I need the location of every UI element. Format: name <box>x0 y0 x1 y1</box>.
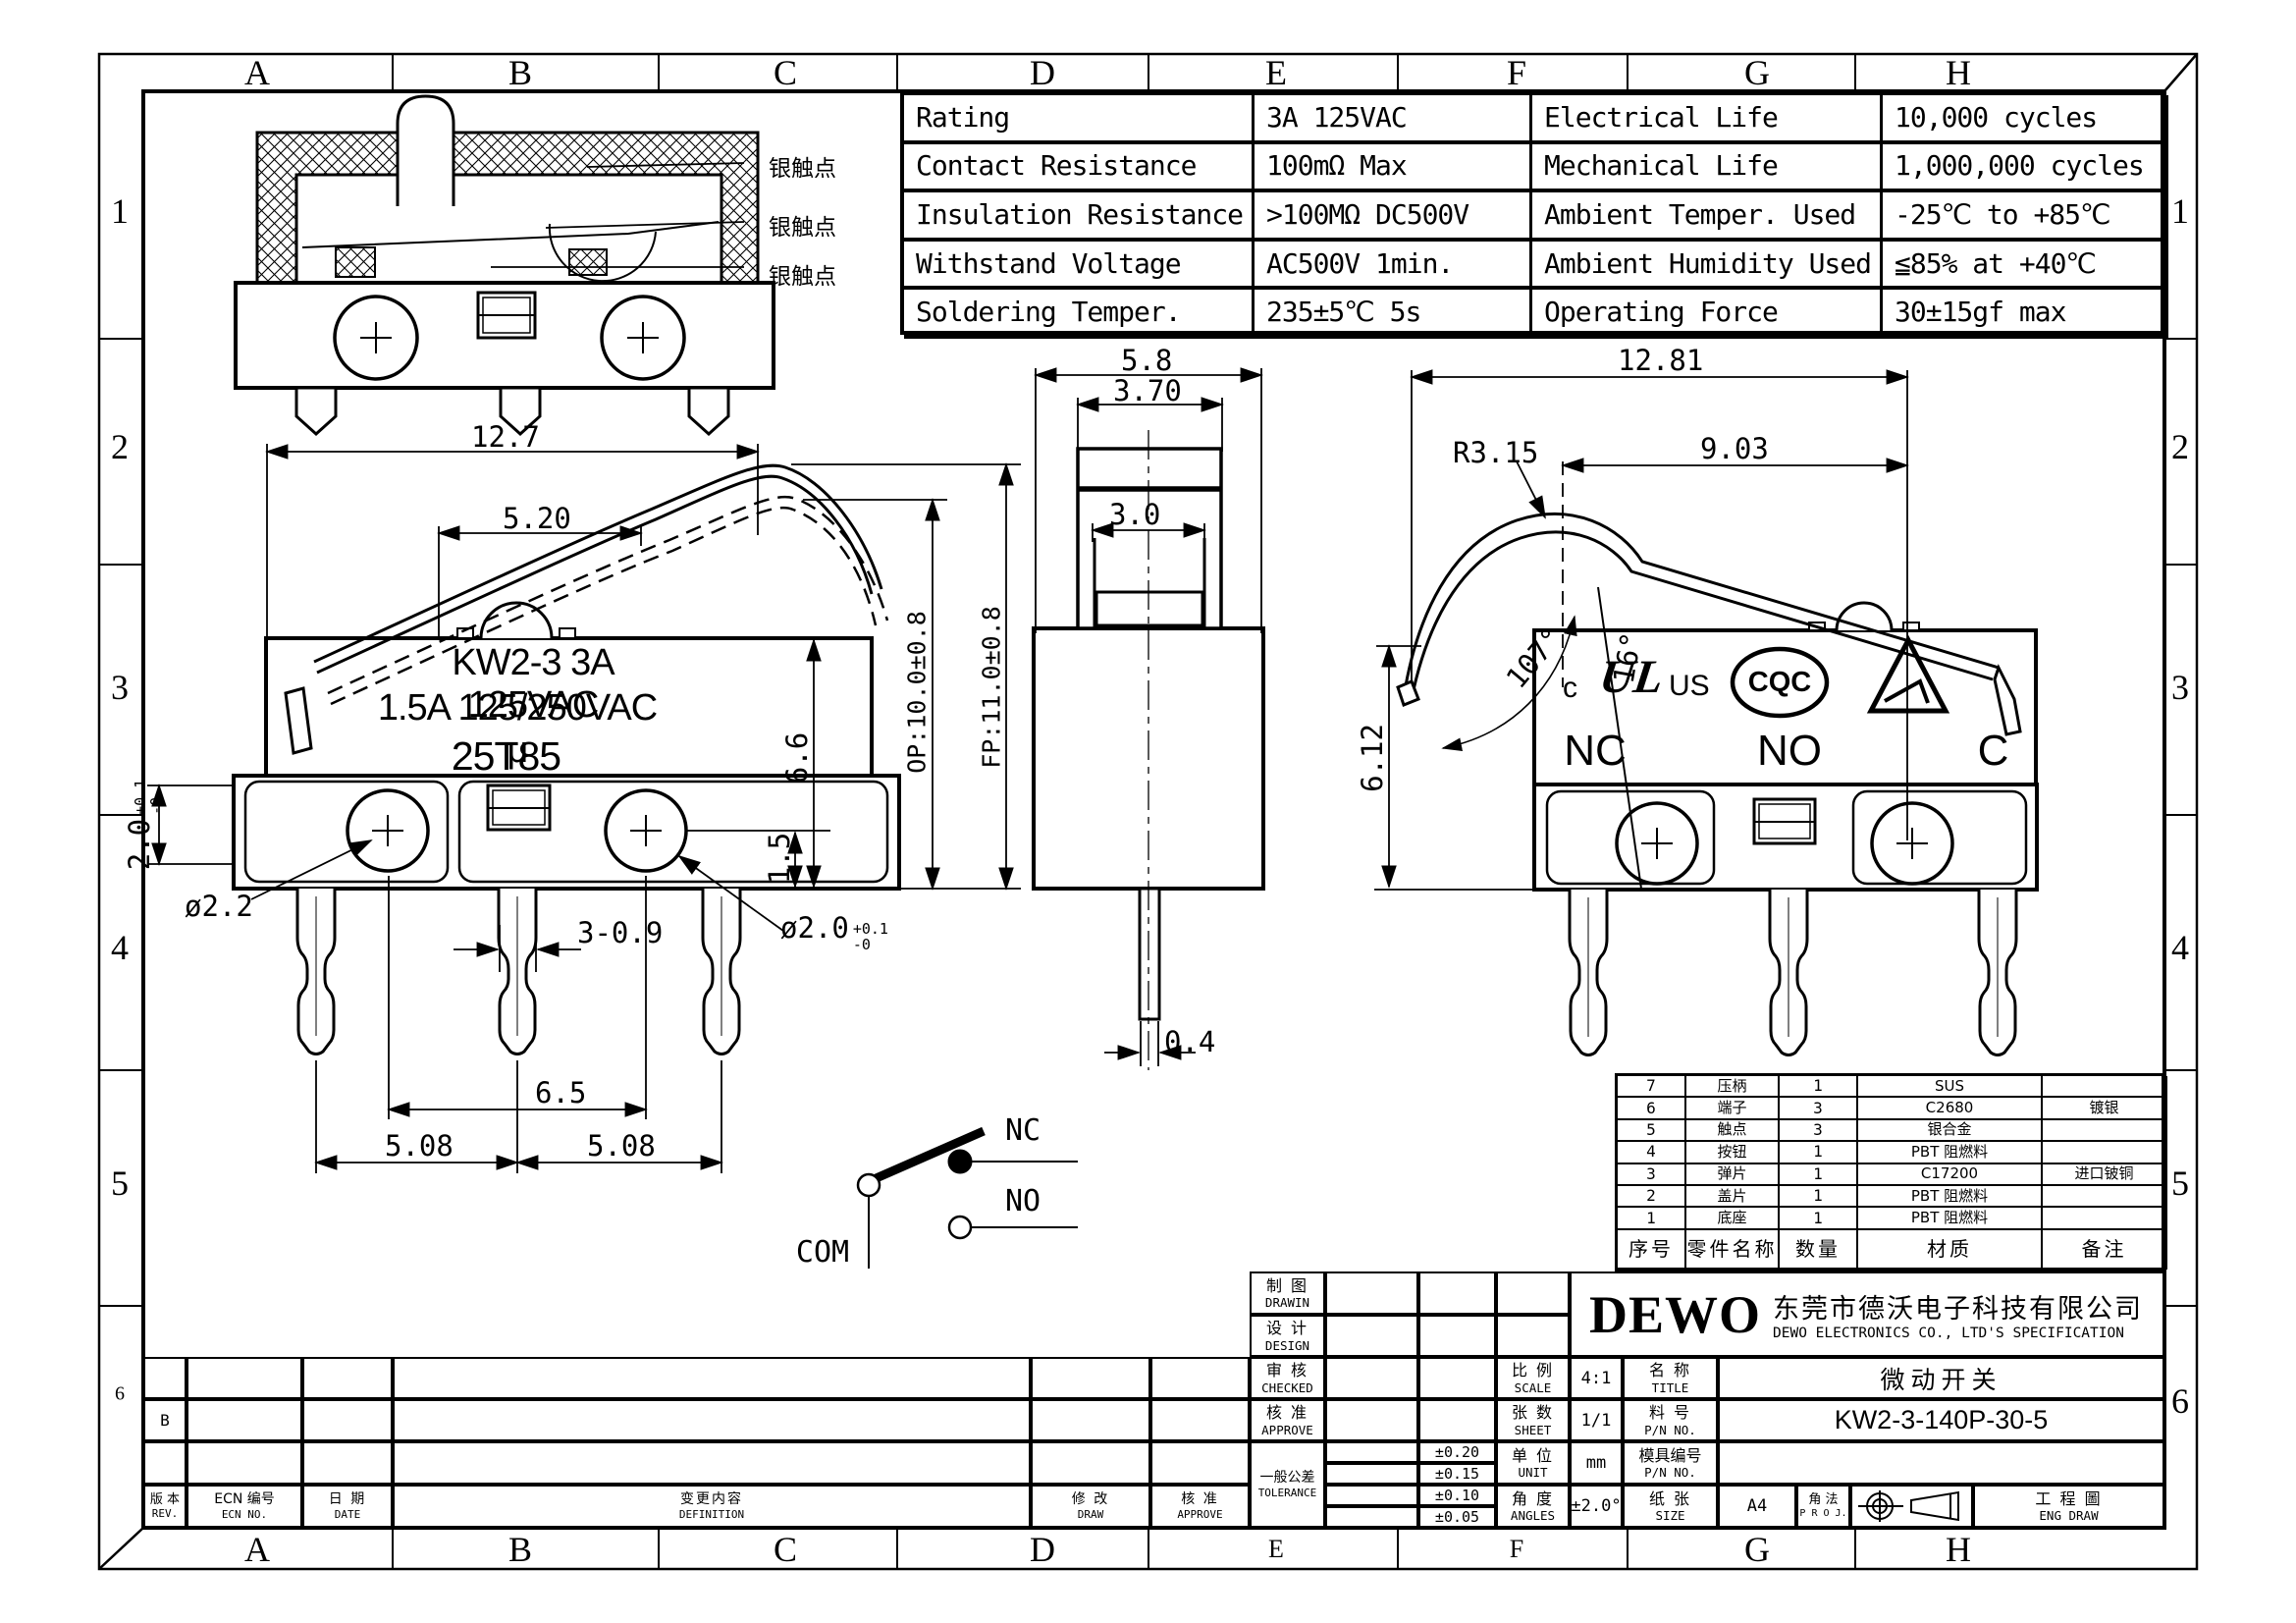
grid-top-a: A <box>244 52 270 93</box>
dim-value: 2.0 <box>123 819 156 870</box>
rev-header-date: 日 期 DATE <box>302 1485 393 1528</box>
dim-step-height: 1.5 <box>763 833 796 884</box>
spec-value: -25℃ to +85℃ <box>1883 192 2168 242</box>
dim-pin-width: 3-0.9 <box>577 916 663 949</box>
titleblock-empty-cell <box>1496 1315 1570 1357</box>
titleblock-empty-cell <box>1418 1399 1496 1441</box>
dim-lever-tip-height: 6.12 <box>1356 724 1389 792</box>
pn-label: 料 号 P/N NO. <box>1623 1399 1718 1441</box>
spec-value: 10,000 cycles <box>1883 95 2168 144</box>
part-remark <box>2043 1076 2167 1098</box>
scale-label: 比 例 SCALE <box>1496 1357 1570 1399</box>
tol-lower: -0 <box>149 780 165 815</box>
left-side-view-drawing <box>147 444 1021 1173</box>
grid-top-g: G <box>1744 52 1770 93</box>
part-no: 7 <box>1618 1076 1686 1098</box>
part-remark <box>2043 1186 2167 1208</box>
label-cn: 核 准 <box>1266 1403 1308 1422</box>
label-cn: 料 号 <box>1649 1403 1691 1422</box>
grid-top-b: B <box>508 52 532 93</box>
part-name: 端子 <box>1686 1098 1780 1119</box>
rev-empty-cell <box>1031 1357 1150 1399</box>
silver-contact-label: 银触点 <box>769 257 836 291</box>
rev-empty-cell <box>143 1357 187 1399</box>
parts-header-material: 材质 <box>1858 1230 2043 1270</box>
tolerance-stack: +0.1-0 <box>133 780 165 815</box>
dim-hole-span: 6.5 <box>535 1076 586 1109</box>
spec-param: Ambient Temper. Used <box>1532 192 1883 242</box>
label-en: ENG DRAW <box>2039 1508 2098 1523</box>
label-en: SCALE <box>1515 1380 1552 1395</box>
dim-right-overall-width: 12.81 <box>1618 344 1703 377</box>
dim-overall-width: 12.7 <box>471 420 540 454</box>
rev-empty-cell <box>1150 1399 1250 1441</box>
label-en: DATE <box>335 1508 361 1521</box>
parts-header-name: 零件名称 <box>1686 1230 1780 1270</box>
spec-value: 100mΩ Max <box>1255 144 1532 193</box>
label-cn: 工 程 圖 <box>2035 1489 2102 1508</box>
spec-param: Insulation Resistance <box>904 192 1255 242</box>
part-name: 触点 <box>1686 1120 1780 1142</box>
company-name-en: DEWO ELECTRONICS CO., LTD'S SPECIFICATIO… <box>1773 1325 2143 1341</box>
grid-bottom-c: C <box>774 1529 797 1570</box>
part-remark <box>2043 1142 2167 1163</box>
ul-logo-icon: UL <box>1596 650 1667 704</box>
label-en: DRAW <box>1078 1508 1104 1521</box>
label-en: UNIT <box>1518 1465 1547 1480</box>
titleblock-empty-cell <box>1325 1315 1418 1357</box>
grid-right-3: 3 <box>2171 667 2189 708</box>
product-title: 微动开关 <box>1718 1357 2164 1399</box>
spec-param: Withstand Voltage <box>904 242 1255 291</box>
rev-empty-cell <box>393 1399 1031 1441</box>
dim-front-width: 5.8 <box>1121 344 1172 377</box>
label-cn: 角 度 <box>1512 1489 1554 1508</box>
label-en: APPROVE <box>1261 1423 1313 1437</box>
grid-bottom-f: F <box>1510 1535 1523 1564</box>
grid-top-h: H <box>1946 52 1971 93</box>
grid-right-1: 1 <box>2171 190 2189 232</box>
label-en: ECN NO. <box>222 1508 267 1521</box>
parts-header-qty: 数量 <box>1780 1230 1858 1270</box>
grid-bottom-a: A <box>244 1529 270 1570</box>
label-en: DESIGN <box>1265 1338 1309 1353</box>
nc-contact-icon <box>948 1150 972 1173</box>
tolerance-empty-cell <box>1325 1463 1418 1485</box>
rev-empty-cell <box>393 1357 1031 1399</box>
titleblock-drawing-label: 制 图 DRAWIN <box>1250 1271 1325 1315</box>
titleblock-empty-cell <box>1418 1357 1496 1399</box>
grid-bottom-b: B <box>508 1529 532 1570</box>
spec-value: 30±15gf max <box>1883 290 2168 339</box>
circuit-label-no: NO <box>993 1184 1052 1218</box>
label-en: SIZE <box>1655 1508 1684 1523</box>
dim-lever-radius: R3.15 <box>1453 436 1538 469</box>
company-header: DEWO 东莞市德沃电子科技有限公司 DEWO ELECTRONICS CO.,… <box>1570 1271 2164 1357</box>
titleblock-empty-cell <box>1418 1271 1496 1315</box>
spec-param: Mechanical Life <box>1532 144 1883 193</box>
label-cn: ECN 编号 <box>214 1491 275 1508</box>
label-cn: 单 位 <box>1512 1446 1554 1465</box>
part-no: 1 <box>1618 1208 1686 1229</box>
ul-us-text: US <box>1669 670 1710 703</box>
label-en: APPROVE <box>1177 1508 1222 1521</box>
rev-empty-cell <box>187 1357 302 1399</box>
spec-value: 1,000,000 cycles <box>1883 144 2168 193</box>
spec-table: Rating 3A 125VAC Electrical Life 10,000 … <box>900 91 2164 335</box>
tol-lower: -0 <box>853 938 888 953</box>
part-qty: 3 <box>1780 1120 1858 1142</box>
spec-value: AC500V 1min. <box>1255 242 1532 291</box>
part-material: C2680 <box>1858 1098 2043 1119</box>
parts-header-remark: 备注 <box>2043 1230 2167 1270</box>
part-remark <box>2043 1208 2167 1229</box>
circuit-label-com: COM <box>783 1235 862 1270</box>
part-qty: 1 <box>1780 1142 1858 1163</box>
terminal-label-nc: NC <box>1561 727 1629 776</box>
grid-top-e: E <box>1265 52 1287 93</box>
sheet-label: 张 数 SHEET <box>1496 1399 1570 1441</box>
parts-header-no: 序号 <box>1618 1230 1686 1270</box>
grid-top-f: F <box>1507 52 1526 93</box>
rev-empty-cell <box>1150 1357 1250 1399</box>
part-no: 2 <box>1618 1186 1686 1208</box>
rev-empty-cell <box>1031 1399 1150 1441</box>
dim-hole-left: ø2.2 <box>185 890 253 923</box>
company-name-cn: 东莞市德沃电子科技有限公司 <box>1773 1287 2143 1325</box>
part-material: PBT 阻燃料 <box>1858 1208 2043 1229</box>
spec-value: 3A 125VAC <box>1255 95 1532 144</box>
grid-right-6: 6 <box>2171 1380 2189 1422</box>
rev-header-definition: 变更内容 DEFINITION <box>393 1485 1031 1528</box>
front-view-drawing <box>1034 368 1263 1070</box>
dim-button-inner-width: 3.0 <box>1109 498 1160 531</box>
label-en: P/N NO. <box>1644 1465 1696 1480</box>
label-cn: 修 改 <box>1072 1491 1109 1508</box>
spec-value: 235±5℃ 5s <box>1255 290 1532 339</box>
part-material: 银合金 <box>1858 1120 2043 1142</box>
rev-empty-cell <box>1031 1441 1150 1485</box>
label-cn: 模具编号 <box>1638 1446 1701 1465</box>
grid-right-4: 4 <box>2171 927 2189 968</box>
part-no: 5 <box>1618 1120 1686 1142</box>
label-en: DEFINITION <box>679 1508 744 1521</box>
paper-size-label: 纸 张 SIZE <box>1623 1485 1718 1528</box>
dim-pin-thickness: 0.4 <box>1164 1025 1215 1058</box>
dewo-logo: DEWO <box>1589 1284 1761 1345</box>
titleblock-empty-cell <box>1325 1271 1418 1315</box>
body-marking-line3: 25T85 <box>420 733 592 780</box>
title-label: 名 称 TITLE <box>1623 1357 1718 1399</box>
part-name: 弹片 <box>1686 1164 1780 1186</box>
dim-free-position: FP:11.0±0.8 <box>978 606 1006 769</box>
dim-operating-position: OP:10.0±0.8 <box>903 611 932 774</box>
part-number-value: KW2-3-140P-30-5 <box>1718 1399 2164 1441</box>
part-name: 盖片 <box>1686 1186 1780 1208</box>
grid-bottom-h: H <box>1946 1529 1971 1570</box>
tolerance-value: ±0.10 <box>1418 1485 1496 1506</box>
scale-value: 4:1 <box>1570 1357 1623 1399</box>
label-cn: 日 期 <box>329 1491 366 1508</box>
part-qty: 1 <box>1780 1164 1858 1186</box>
rev-empty-cell <box>302 1441 393 1485</box>
label-cn: 核 准 <box>1181 1491 1218 1508</box>
spec-value: ≦85% at +40℃ <box>1883 242 2168 291</box>
spec-param: Electrical Life <box>1532 95 1883 144</box>
rev-empty-cell <box>143 1441 187 1485</box>
titleblock-empty-cell <box>1496 1271 1570 1315</box>
part-qty: 3 <box>1780 1098 1858 1119</box>
tolerance-empty-cell <box>1325 1506 1418 1528</box>
label-en: TITLE <box>1652 1380 1689 1395</box>
label-cn: 一般公差 <box>1260 1470 1315 1487</box>
rev-header-rev: 版 本 REV. <box>143 1485 187 1528</box>
tolerance-value: ±0.15 <box>1418 1463 1496 1485</box>
rev-header-ecn: ECN 编号 ECN NO. <box>187 1485 302 1528</box>
label-cn: 比 例 <box>1512 1361 1554 1380</box>
rev-empty-cell <box>302 1399 393 1441</box>
circuit-label-nc: NC <box>993 1113 1052 1148</box>
tolerance-stack: +0.1-0 <box>853 922 888 953</box>
dim-body-height: 6.6 <box>780 732 814 784</box>
grid-top-c: C <box>774 52 797 93</box>
grid-left-6: 6 <box>115 1383 125 1406</box>
spec-param: Operating Force <box>1532 290 1883 339</box>
rev-empty-cell <box>1150 1441 1250 1485</box>
dim-pin-pitch-right: 5.08 <box>587 1129 656 1163</box>
titleblock-empty-cell <box>1325 1399 1418 1441</box>
grid-left-4: 4 <box>111 927 129 968</box>
rev-empty-cell <box>187 1399 302 1441</box>
dim-lever-reach: 9.03 <box>1700 432 1769 465</box>
label-cn: 名 称 <box>1649 1361 1691 1380</box>
terminal-label-no: NO <box>1755 727 1824 776</box>
spec-param: Rating <box>904 95 1255 144</box>
grid-left-1: 1 <box>111 190 129 232</box>
label-cn: 张 数 <box>1512 1403 1554 1422</box>
part-no: 4 <box>1618 1142 1686 1163</box>
tolerance-value: ±0.20 <box>1418 1441 1496 1463</box>
label-cn: 纸 张 <box>1649 1489 1691 1508</box>
tolerance-empty-cell <box>1325 1485 1418 1506</box>
grid-bottom-e: E <box>1268 1535 1284 1564</box>
titleblock-checked-label: 审 核 CHECKED <box>1250 1357 1325 1399</box>
label-en: P R O J. <box>1799 1508 1846 1520</box>
rev-header-approve: 核 准 APPROVE <box>1150 1485 1250 1528</box>
part-name: 按钮 <box>1686 1142 1780 1163</box>
no-contact-icon <box>949 1217 971 1238</box>
silver-contact-label: 银触点 <box>769 208 836 242</box>
label-en: CHECKED <box>1261 1380 1313 1395</box>
rev-empty-cell <box>302 1357 393 1399</box>
third-angle-projection-icon <box>1854 1488 1970 1525</box>
drawing-sheet: A B C D E F G H A B C D E F G H 1 2 3 4 … <box>0 0 2296 1623</box>
dim-lever-length: 5.20 <box>503 502 571 535</box>
label-en: ANGLES <box>1511 1508 1555 1523</box>
part-no: 3 <box>1618 1164 1686 1186</box>
eng-draw-label: 工 程 圖 ENG DRAW <box>1973 1485 2164 1528</box>
label-cn: 变更内容 <box>680 1491 743 1508</box>
grid-bottom-d: D <box>1030 1529 1055 1570</box>
part-material: PBT 阻燃料 <box>1858 1142 2043 1163</box>
grid-left-3: 3 <box>111 667 129 708</box>
right-side-view-drawing <box>1374 370 2037 1055</box>
tolerance-label: 一般公差 TOLERANCE <box>1250 1441 1325 1528</box>
label-cn: 角 法 <box>1808 1492 1838 1508</box>
dim-button-width: 3.70 <box>1113 374 1182 407</box>
grid-left-5: 5 <box>111 1163 129 1204</box>
part-remark: 进口铍铜 <box>2043 1164 2167 1186</box>
label-cn: 制 图 <box>1266 1276 1308 1295</box>
part-remark <box>2043 1120 2167 1142</box>
angles-label: 角 度 ANGLES <box>1496 1485 1570 1528</box>
label-cn: 设 计 <box>1266 1319 1308 1337</box>
rev-empty-cell <box>187 1441 302 1485</box>
silver-contact-label: 银触点 <box>769 149 836 183</box>
rev-empty-cell <box>393 1441 1031 1485</box>
spec-param: Ambient Humidity Used <box>1532 242 1883 291</box>
titleblock-design-label: 设 计 DESIGN <box>1250 1315 1325 1357</box>
projection-symbol-cell <box>1850 1485 1973 1528</box>
grid-bottom-g: G <box>1744 1529 1770 1570</box>
part-name: 压柄 <box>1686 1076 1780 1098</box>
titleblock-empty-cell <box>1325 1357 1418 1399</box>
unit-label: 单 位 UNIT <box>1496 1441 1570 1485</box>
rev-header-draw: 修 改 DRAW <box>1031 1485 1150 1528</box>
label-cn: 版 本 <box>150 1492 180 1508</box>
angles-value: ±2.0° <box>1570 1485 1623 1528</box>
mold-number-value <box>1718 1441 2164 1485</box>
paper-size-value: A4 <box>1718 1485 1796 1528</box>
cross-section-drawing <box>236 96 774 434</box>
part-material: C17200 <box>1858 1164 2043 1186</box>
titleblock-empty-cell <box>1418 1315 1496 1357</box>
label-en: DRAWIN <box>1265 1295 1309 1310</box>
label-en: REV. <box>152 1507 179 1520</box>
part-remark: 镀银 <box>2043 1098 2167 1119</box>
grid-left-2: 2 <box>111 426 129 467</box>
part-material: SUS <box>1858 1076 2043 1098</box>
rev-version-b: B <box>143 1399 187 1441</box>
part-no: 6 <box>1618 1098 1686 1119</box>
label-cn: 审 核 <box>1266 1361 1308 1380</box>
tolerance-empty-cell <box>1325 1441 1418 1463</box>
sheet-value: 1/1 <box>1570 1399 1623 1441</box>
com-terminal-icon <box>858 1174 880 1196</box>
spec-param: Soldering Temper. <box>904 290 1255 339</box>
cqc-logo-text: CQC <box>1746 667 1813 699</box>
spec-value: >100MΩ DC500V <box>1255 192 1532 242</box>
dim-value: ø2.0 <box>780 911 849 945</box>
titleblock-approve-label: 核 准 APPROVE <box>1250 1399 1325 1441</box>
grid-right-2: 2 <box>2171 426 2189 467</box>
dim-hole-right: ø2.0+0.1-0 <box>780 911 888 953</box>
label-en: TOLERANCE <box>1258 1487 1317 1499</box>
part-name: 底座 <box>1686 1208 1780 1229</box>
ul-c-text: c <box>1563 672 1577 705</box>
mold-number-label: 模具编号 P/N NO. <box>1623 1441 1718 1485</box>
tolerance-value: ±0.05 <box>1418 1506 1496 1528</box>
part-qty: 1 <box>1780 1208 1858 1229</box>
parts-table: 7 压柄 1 SUS 6 端子 3 C2680 镀银 5 触点 3 银合金 4 … <box>1615 1073 2164 1272</box>
label-en: P/N NO. <box>1644 1423 1696 1437</box>
grid-right-5: 5 <box>2171 1163 2189 1204</box>
label-en: SHEET <box>1515 1423 1552 1437</box>
part-qty: 1 <box>1780 1186 1858 1208</box>
projection-label: 角 法 P R O J. <box>1796 1485 1850 1528</box>
terminal-label-c: C <box>1971 727 2015 776</box>
part-qty: 1 <box>1780 1076 1858 1098</box>
part-material: PBT 阻燃料 <box>1858 1186 2043 1208</box>
unit-value: mm <box>1570 1441 1623 1485</box>
grid-top-d: D <box>1030 52 1055 93</box>
dim-pin-pitch-left: 5.08 <box>385 1129 454 1163</box>
dim-base-height: 2.0+0.1-0 <box>123 780 165 871</box>
spec-param: Contact Resistance <box>904 144 1255 193</box>
